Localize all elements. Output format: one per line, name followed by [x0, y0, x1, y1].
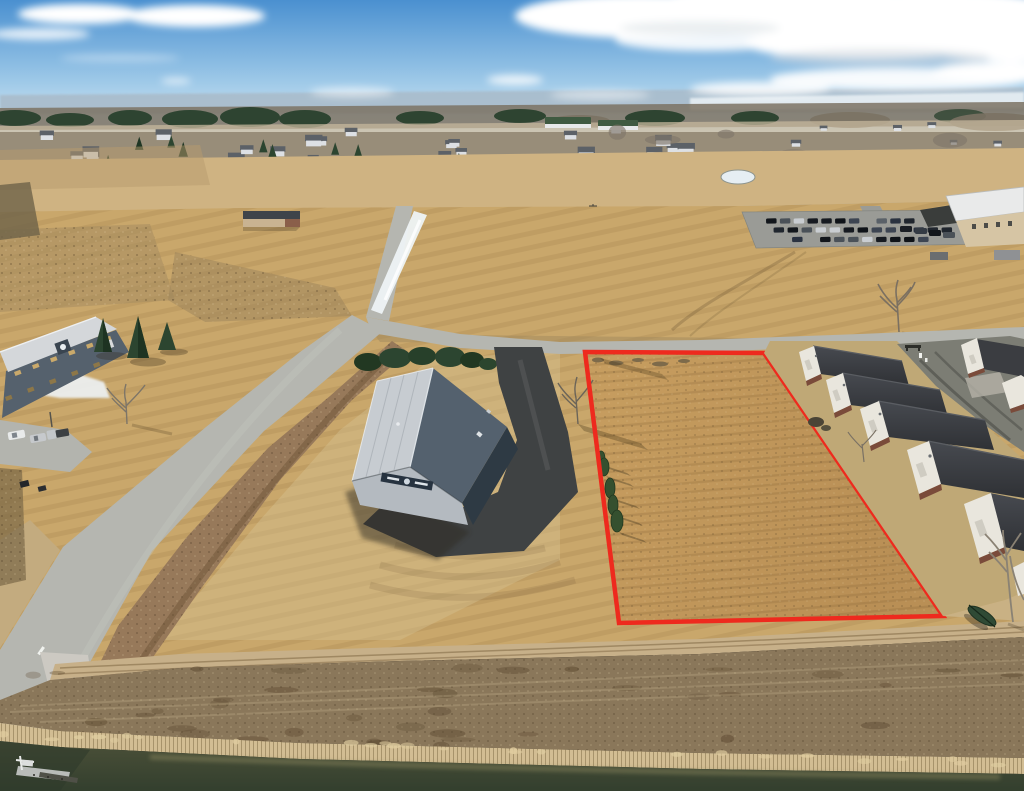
reed-tuft: [110, 737, 119, 742]
parked-car: [792, 237, 803, 242]
parked-car: [890, 218, 901, 223]
parked-car: [788, 227, 799, 232]
parked-car: [890, 237, 901, 242]
scrub-patch: [428, 707, 452, 716]
distant-house-roof: [40, 131, 54, 136]
distant-house-roof: [156, 129, 172, 135]
pallet-stack: [930, 252, 948, 260]
cedar-tree: [611, 510, 623, 532]
parked-car: [844, 227, 855, 232]
distant-house: [449, 143, 459, 147]
distant-house-roof: [240, 145, 253, 150]
reed-tuft: [857, 758, 871, 764]
parked-car: [942, 227, 953, 232]
reed-tuft: [135, 736, 143, 739]
shrub: [808, 417, 824, 427]
reed-tuft: [896, 758, 908, 761]
distant-house: [306, 141, 321, 147]
parked-car: [816, 227, 827, 232]
scrub-patch: [49, 671, 65, 675]
reed-tuft: [954, 761, 968, 766]
reed-tuft: [671, 752, 683, 757]
parked-car: [830, 227, 841, 232]
distant-house-roof: [305, 135, 322, 141]
scrub-patch: [565, 666, 579, 671]
distant-house: [928, 125, 935, 128]
parked-car: [862, 237, 873, 242]
distant-house-roof: [564, 131, 577, 136]
parked-car: [807, 218, 818, 223]
scrub-patch: [706, 667, 733, 671]
scrub-patch: [346, 715, 362, 722]
distant-house: [894, 128, 901, 131]
scrub-patch: [285, 728, 304, 737]
distant-house-roof: [678, 143, 695, 149]
parked-car: [872, 227, 883, 232]
parked-car: [876, 237, 887, 242]
scrub-patch: [879, 683, 891, 688]
distant-house: [821, 128, 827, 131]
parked-car: [794, 218, 805, 223]
sign-post: [925, 358, 928, 362]
bare-tree-grove: [609, 125, 627, 140]
parked-car: [766, 218, 777, 223]
parked-car: [904, 237, 915, 242]
distant-house-roof: [345, 128, 358, 133]
reed-tuft: [439, 747, 449, 750]
reed-tuft: [344, 740, 359, 746]
parked-car: [802, 227, 813, 232]
distant-house: [346, 132, 357, 136]
distant-house-roof: [455, 148, 467, 152]
parked-car: [918, 237, 929, 242]
reed-tuft: [364, 743, 377, 748]
scrub-patch: [812, 670, 844, 678]
scrub-patch: [26, 672, 41, 679]
reed-tuft: [991, 763, 1006, 768]
parked-car: [834, 237, 845, 242]
parked-car: [904, 218, 915, 223]
parked-car: [849, 218, 860, 223]
distant-house: [241, 150, 253, 154]
reed-tuft: [122, 733, 131, 739]
reed-tuft: [801, 753, 815, 757]
scrub-patch: [721, 735, 734, 743]
pallet-stack: [994, 250, 1020, 260]
distant-house-roof: [578, 147, 595, 153]
reed-tuft: [91, 735, 106, 740]
bare-tree-grove: [645, 135, 681, 145]
distant-house: [157, 135, 171, 140]
scrub-patch: [264, 687, 299, 693]
scrub-patch: [452, 664, 482, 673]
reed-tuft: [44, 737, 59, 741]
scrub-patch: [191, 666, 203, 671]
parked-car: [774, 227, 785, 232]
distant-house: [41, 135, 53, 140]
scrub-patch: [396, 723, 425, 732]
scrub-patch: [167, 725, 197, 731]
parked-car: [858, 227, 869, 232]
reed-tuft: [387, 743, 401, 748]
roof-vent: [396, 422, 400, 426]
reed-tuft: [759, 755, 773, 759]
parked-car: [780, 218, 791, 223]
reed-tuft: [537, 749, 546, 754]
scrub-patch: [151, 708, 163, 714]
parked-car: [835, 218, 846, 223]
boat-lift: [22, 760, 33, 767]
reed-tuft: [510, 747, 518, 754]
reed-tuft: [400, 742, 414, 748]
aerial-photo: Aerial drone photo of a vacant commercia…: [0, 0, 1024, 791]
shrub: [821, 425, 831, 431]
aerial-photo-stage: Aerial drone photo of a vacant commercia…: [0, 0, 1024, 791]
reed-tuft: [948, 756, 958, 762]
distant-house-roof: [448, 139, 460, 143]
reed-tuft: [74, 735, 84, 739]
parked-car: [886, 227, 897, 232]
scrub-patch: [497, 667, 530, 674]
reed-tuft: [233, 739, 240, 745]
parked-car: [820, 237, 831, 242]
scrub-patch: [441, 737, 476, 742]
scrub-patch: [271, 668, 306, 674]
scrub-patch: [935, 668, 961, 672]
parked-car: [821, 218, 832, 223]
parked-car: [848, 237, 859, 242]
reed-tuft: [716, 750, 728, 756]
scrub-patch: [430, 729, 466, 737]
distant-house: [565, 135, 576, 139]
distant-house: [792, 143, 800, 146]
distant-house: [994, 144, 1001, 147]
small-outbuilding: [243, 211, 300, 231]
parked-car: [876, 218, 887, 223]
frozen-pond: [721, 170, 755, 184]
bare-tree-grove: [718, 130, 735, 139]
bare-tree-grove: [933, 133, 967, 148]
scrub-patch: [861, 722, 890, 729]
sign-post: [919, 353, 922, 358]
scrub-patch: [518, 732, 539, 737]
